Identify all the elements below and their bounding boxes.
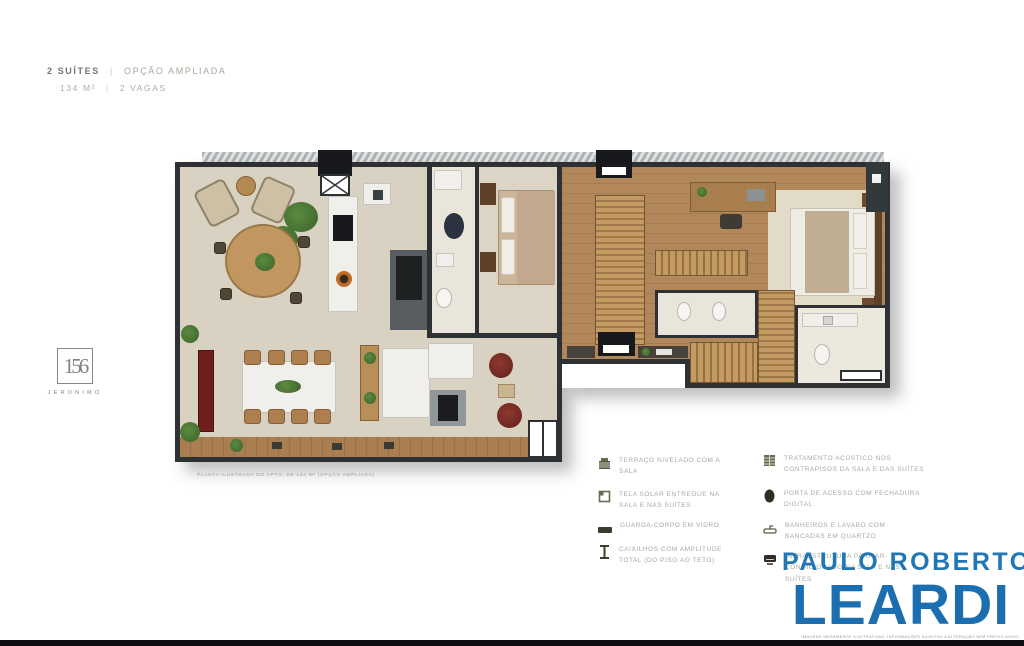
dining-chair xyxy=(314,409,331,424)
deck-object xyxy=(384,442,394,449)
plan-title: 2 SUÍTES | OPÇÃO AMPLIADA xyxy=(47,66,226,76)
stool xyxy=(214,242,226,254)
dining-chair xyxy=(291,409,308,424)
tv-console xyxy=(430,390,466,426)
deck-object xyxy=(272,442,282,449)
elevator-x-icon xyxy=(322,176,348,194)
plan-specs: 134 M² | 2 VAGAS xyxy=(60,83,226,93)
kitchen-island xyxy=(328,196,358,312)
plan-header: 2 SUÍTES | OPÇÃO AMPLIADA 134 M² | 2 VAG… xyxy=(47,66,226,93)
legend-item: CAIXILHOS COM AMPLITUDE TOTAL (DO PISO A… xyxy=(598,544,737,567)
dining-chair xyxy=(244,409,261,424)
dining-chair xyxy=(291,350,308,365)
elevator-shaft xyxy=(318,150,352,176)
slatted-bench xyxy=(655,250,748,276)
sink xyxy=(436,253,454,267)
planter xyxy=(198,350,214,432)
dining-table xyxy=(242,361,336,413)
pouf xyxy=(489,353,513,378)
elevator-car xyxy=(320,174,350,196)
quartz-countertop-icon xyxy=(763,521,777,539)
interior-wall xyxy=(427,333,559,338)
bush xyxy=(180,422,200,442)
service-box xyxy=(598,332,635,356)
wardrobe xyxy=(758,290,795,383)
bathroom xyxy=(655,290,758,338)
appliance-column xyxy=(390,250,428,330)
dining-chair xyxy=(244,350,261,365)
nightstand xyxy=(480,183,496,205)
closet-unit xyxy=(595,195,645,345)
kitchen-sink xyxy=(363,183,391,205)
bathtub-basin xyxy=(444,213,464,239)
stool xyxy=(298,236,310,248)
bathroom xyxy=(795,305,885,383)
bidet xyxy=(712,302,726,321)
jeronimo-logo-name: JERONIMO xyxy=(45,390,105,396)
leardi-logo-bottom: LEARDI xyxy=(782,578,1020,632)
suite2-desk xyxy=(690,182,776,212)
jeronimo-logo-box: 156 xyxy=(57,348,93,384)
cooktop xyxy=(333,215,353,241)
plan-title-primary: 2 SUÍTES xyxy=(47,66,100,76)
toilet xyxy=(436,288,452,308)
round-table xyxy=(225,224,301,298)
jeronimo-logo-number: 156 xyxy=(64,354,87,379)
bush xyxy=(181,325,199,343)
solar-screen-icon xyxy=(598,490,611,508)
toilet xyxy=(677,302,691,321)
hall-shelf xyxy=(567,346,595,358)
dining-chair xyxy=(268,409,285,424)
dining-chair xyxy=(314,350,331,365)
service-corner xyxy=(866,162,888,212)
deck-plant xyxy=(230,439,243,452)
nightstand xyxy=(480,252,496,272)
legend-item: TELA SOLAR ENTREGUE NA SALA E NAS SUÍTES xyxy=(598,489,737,512)
floorplan-caption: PLANTA ILUSTRADA DO APTO. DE 134 M² (OPÇ… xyxy=(197,473,375,478)
legend-item: TRATAMENTO ACÚSTICO NOS CONTRAPISOS DA S… xyxy=(763,453,926,476)
side-table xyxy=(236,176,256,196)
stool xyxy=(290,292,302,304)
floorplan xyxy=(172,150,894,468)
suite1-bed xyxy=(498,190,554,285)
interior-wall xyxy=(475,167,479,333)
air-conditioning-icon xyxy=(763,552,777,570)
legend-item: GUARDA-CORPO EM VIDRO xyxy=(598,520,738,539)
legend-item: BANHEIROS E LAVABO COM BANCADAS EM QUART… xyxy=(763,520,927,543)
plan-area: 134 M² xyxy=(60,83,96,93)
coffee-table xyxy=(498,384,515,398)
toilet xyxy=(814,344,830,365)
sideboard xyxy=(360,345,379,421)
suite2-headboard xyxy=(874,198,882,308)
footer-bar xyxy=(0,640,1024,646)
brand-disclaimer: IMAGENS MERAMENTE ILUSTRATIVAS. INFORMAÇ… xyxy=(782,634,1020,639)
plan-cutout xyxy=(562,359,690,388)
plan-parking: 2 VAGAS xyxy=(120,83,167,93)
glass-guardrail-icon xyxy=(598,521,612,539)
legend-item: TERRAÇO NIVELADO COM A SALA xyxy=(598,455,737,478)
leardi-logo: PAULO ROBERTO LEARDI IMAGENS MERAMENTE I… xyxy=(782,548,1020,639)
title-separator: | xyxy=(110,66,114,76)
terrace-window xyxy=(528,420,558,458)
specs-separator: | xyxy=(106,83,110,93)
deck-object xyxy=(332,443,342,450)
digital-lock-icon xyxy=(763,489,776,508)
bathroom xyxy=(432,167,475,333)
laundry-unit xyxy=(434,170,462,190)
acoustic-treatment-icon xyxy=(763,454,776,472)
desk-chair xyxy=(720,214,742,229)
interior-wall xyxy=(427,162,432,338)
jeronimo-logo: 156 JERONIMO xyxy=(45,348,105,396)
sofa xyxy=(382,348,430,418)
deck-leveled-icon xyxy=(598,456,611,474)
plan-title-secondary: OPÇÃO AMPLIADA xyxy=(124,66,226,76)
legend-item: PORTA DE ACESSO COM FECHADURA DIGITAL xyxy=(763,488,926,511)
hall-shelf xyxy=(638,346,688,358)
pan xyxy=(336,271,352,287)
dining-chair xyxy=(268,350,285,365)
sofa-chaise xyxy=(428,343,474,379)
pouf xyxy=(497,403,522,428)
window-frame-icon xyxy=(598,545,611,564)
suite2-bed xyxy=(790,208,875,296)
stair-shaft xyxy=(596,150,632,178)
wardrobe xyxy=(690,342,758,383)
stool xyxy=(220,288,232,300)
